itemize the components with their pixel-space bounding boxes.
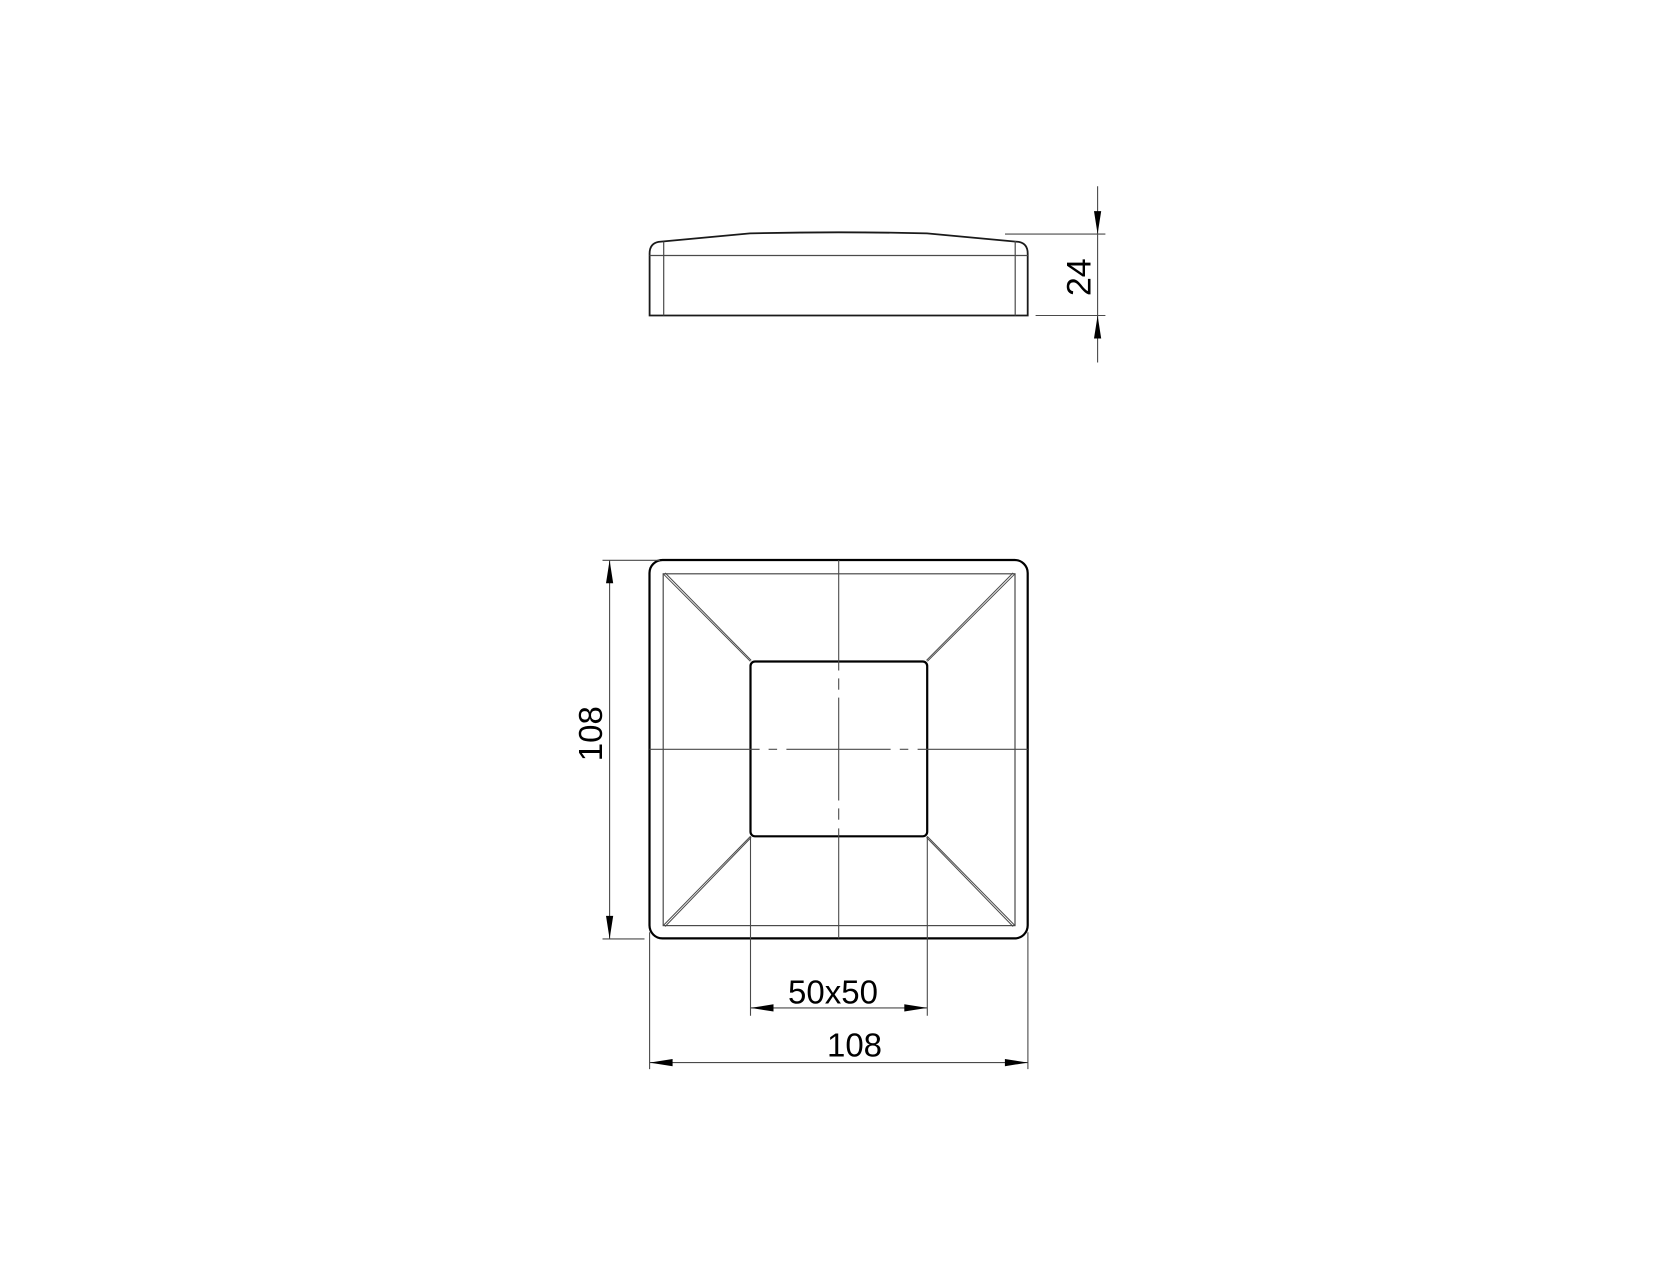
svg-text:108: 108 <box>827 1027 882 1064</box>
svg-text:24: 24 <box>1060 258 1098 296</box>
svg-text:50x50: 50x50 <box>788 973 878 1010</box>
svg-text:108: 108 <box>572 706 609 761</box>
